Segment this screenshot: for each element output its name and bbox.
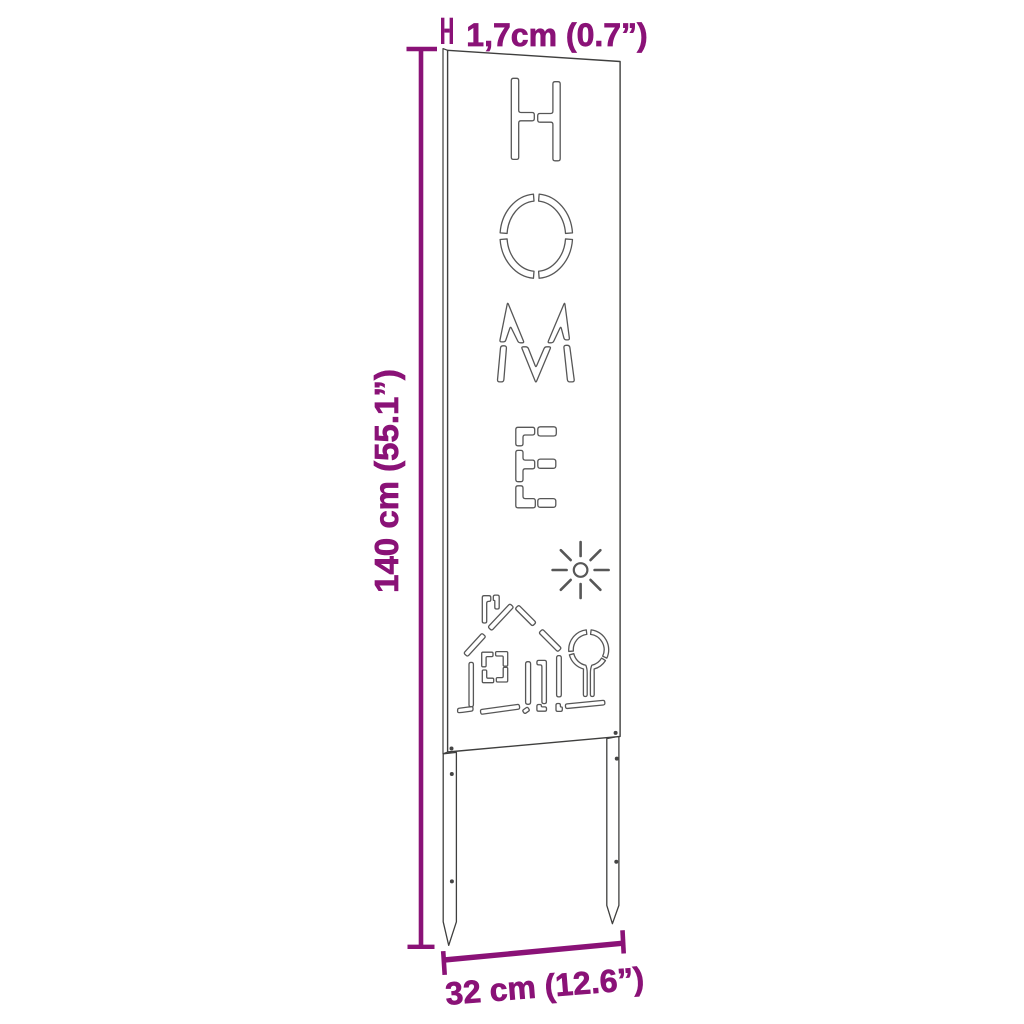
svg-text:140 cm (55.1”): 140 cm (55.1”) xyxy=(368,369,405,593)
svg-text:1,7cm (0.7”): 1,7cm (0.7”) xyxy=(466,17,647,53)
svg-text:32 cm (12.6”): 32 cm (12.6”) xyxy=(444,960,645,1012)
